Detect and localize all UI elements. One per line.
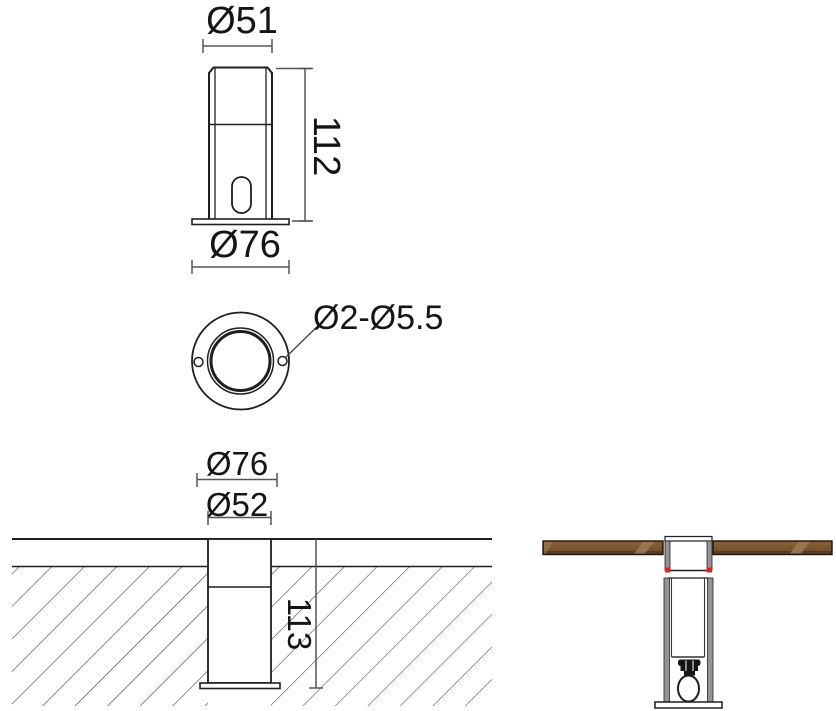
ground-base-flange — [200, 683, 280, 689]
deck-plank-right-shadow — [714, 551, 831, 554]
deck-body-wall-left — [664, 578, 670, 702]
deck-gasket-mark-left — [665, 568, 671, 573]
top-outer-flange-circle — [192, 313, 289, 410]
ground-hatch-left — [12, 567, 208, 706]
top-lens-circle — [211, 332, 270, 391]
deck-body-wall-right — [708, 578, 714, 702]
dim-label-ground-body-diameter: Ø52 — [195, 488, 279, 521]
deck-cable-slot — [678, 676, 699, 702]
deck-view — [543, 537, 832, 709]
top-mounting-hole-left — [194, 358, 203, 367]
deck-gasket-mark-right — [707, 568, 713, 573]
top-view — [192, 313, 327, 410]
dim-label-front-base-diameter: Ø76 — [202, 226, 288, 264]
dim-label-front-height: 112 — [302, 96, 350, 196]
dim-label-front-top-diameter: Ø51 — [201, 2, 283, 40]
deck-fixture-top-cap — [665, 537, 712, 542]
technical-drawing-canvas: Ø51 112 Ø76 Ø2-Ø5.5 Ø76 Ø52 113 — [0, 0, 836, 711]
top-mounting-hole-right — [278, 357, 287, 366]
drawing-lineart — [0, 0, 836, 711]
top-bezel-circle — [208, 328, 274, 394]
dim-label-ground-embed-depth: 113 — [279, 574, 319, 674]
front-body-outline — [209, 68, 272, 220]
deck-cable-gland — [678, 660, 701, 676]
deck-head-wall-left — [665, 541, 670, 571]
ground-embedded-body — [208, 539, 271, 683]
dim-label-top-mounting-holes: Ø2-Ø5.5 — [313, 301, 443, 335]
deck-base-flange — [655, 702, 722, 708]
dim-label-ground-flange-diameter: Ø76 — [195, 447, 279, 480]
deck-head-wall-right — [707, 541, 712, 571]
front-cable-slot — [232, 177, 251, 213]
